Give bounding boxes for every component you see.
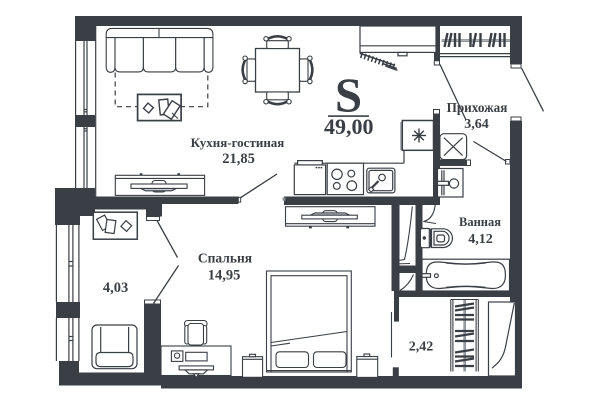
svg-text:14,95: 14,95	[208, 268, 241, 284]
svg-text:4,03: 4,03	[103, 280, 128, 296]
svg-text:2,42: 2,42	[409, 340, 434, 355]
svg-text:Спальня: Спальня	[198, 251, 252, 266]
svg-text:Прихожая: Прихожая	[447, 100, 508, 115]
svg-text:49,00: 49,00	[324, 114, 374, 139]
svg-text:3,64: 3,64	[464, 117, 489, 132]
svg-text:Ванная: Ванная	[459, 215, 501, 229]
svg-text:21,85: 21,85	[222, 151, 255, 167]
svg-text:4,12: 4,12	[468, 232, 493, 247]
svg-text:Кухня-гостиная: Кухня-гостиная	[191, 135, 285, 150]
